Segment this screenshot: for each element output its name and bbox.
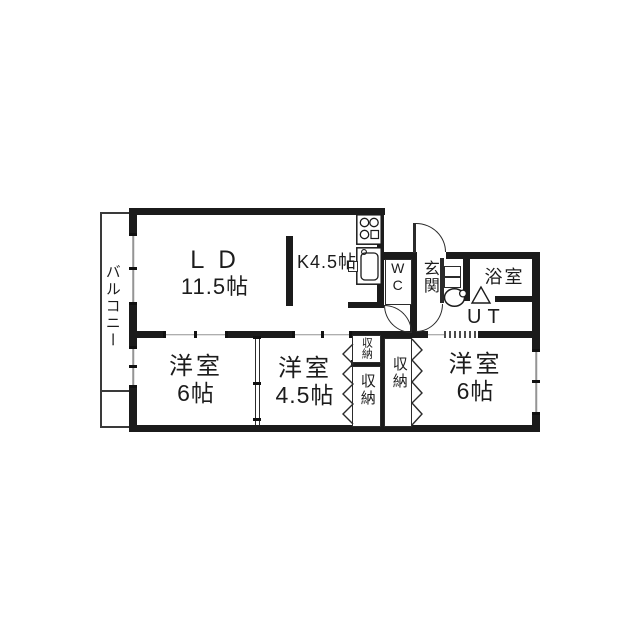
living-dining-size: 11.5帖 [150,275,280,300]
wall-bath-bottom [495,296,540,302]
floor-plan: バルコニー [0,0,640,640]
hall-door-arc-icon [416,304,443,332]
sliding-door-tick [225,331,228,338]
window-tick [532,349,540,352]
bathroom-label: 浴室 [477,267,532,287]
utility-label: UT [467,306,506,328]
closet-left-label: 収納 [358,373,375,407]
opening-bedroom-right [428,331,444,338]
balcony-divider [101,390,131,392]
wall-top [129,208,385,215]
washbasin-icon [443,287,470,308]
entrance-label: 玄関 [420,260,438,294]
window-tick [129,233,137,236]
wall-kitchen-bottom [348,302,384,308]
window-tick [532,412,540,415]
window-tick [129,267,137,270]
window-tick [129,302,137,305]
sliding-door-tick [321,331,324,338]
balcony-label: バルコニー [103,264,120,349]
bedroom-center-size: 4.5帖 [258,383,352,409]
window-tick [129,365,137,368]
wall-bottom [129,425,540,432]
kitchen-label: K4.5帖 [297,252,357,272]
entrance-door-arc-icon [416,223,446,252]
bedroom-right-size: 6帖 [427,379,524,405]
window-tick [129,346,137,349]
bedroom-left-label: 洋室 6帖 [148,354,244,407]
partition-ld-kitchen [286,236,293,306]
living-dining-label: ＬＤ 11.5帖 [150,248,280,300]
window-tick [532,380,540,383]
wall-tick [253,418,261,421]
bedroom-left-size: 6帖 [148,381,244,407]
sink-icon [356,247,382,285]
closet-right-label: 収納 [390,356,407,390]
bath-door-triangle-icon [471,286,491,304]
window-tick [129,385,137,388]
bedroom-center-label: 洋室 4.5帖 [258,356,352,409]
sliding-door-tick [292,331,295,338]
wc-label: WC [389,260,405,294]
stove-icon [356,214,382,245]
closet-small-label: 収納 [360,337,372,359]
wall-entry-top-right [446,252,540,259]
bifold-door-icon [411,339,424,425]
bedroom-right-label: 洋室 6帖 [427,352,524,405]
wall-tick [253,336,261,339]
sliding-door-tick [163,331,166,338]
vent-window-ut [444,331,478,338]
sliding-door-tick [194,331,197,338]
shoe-cabinet-icon [444,266,461,277]
